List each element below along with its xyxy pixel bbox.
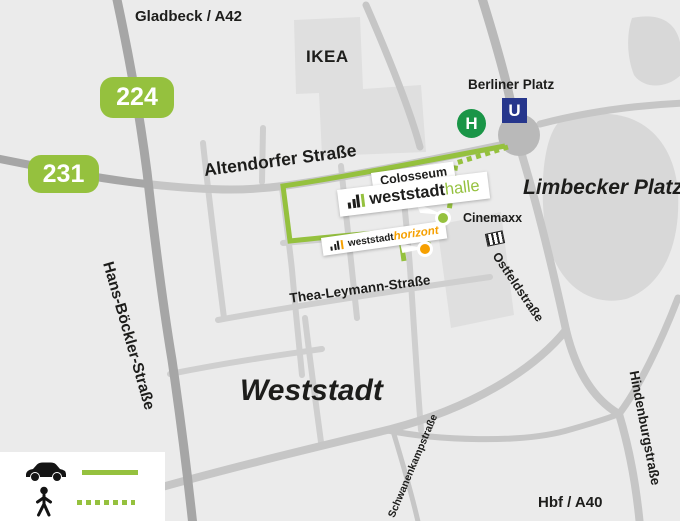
route-badge-231-label: 231 [43,160,85,189]
ikea-building [294,17,426,156]
label-limbecker-platz: Limbecker Platz [523,176,680,200]
label-hbf-a40: Hbf / A40 [538,494,602,511]
legend-walk-row [31,486,135,518]
weststadthorizont-name-suffix: horizont [393,225,440,243]
label-berliner-platz: Berliner Platz [468,77,554,92]
route-badge-224: 224 [100,77,174,118]
u-bahn-icon: U [502,98,527,123]
hindenburg-upper-road [619,298,678,414]
label-weststadt: Weststadt [240,374,383,408]
weststadthorizont-name-prefix: weststadt [347,231,394,248]
pedestrian-icon [31,486,57,518]
route-badge-231: 231 [28,155,99,193]
weststadthalle-bars-icon [347,194,366,209]
legend-dotted-route-line [77,500,135,505]
weststadthalle-name-prefix: weststadt [368,181,446,209]
tram-stop-letter: H [465,114,477,134]
southern-sweep-road [155,330,566,489]
berliner-approach-road [481,0,513,114]
legend-solid-route-line [82,470,138,475]
map-graphic [0,0,680,521]
label-gladbeck-a42: Gladbeck / A42 [135,8,242,25]
limbecker-platz-mall [543,114,679,301]
weststadthalle-marker [435,210,451,226]
label-cinemaxx: Cinemaxx [463,211,522,225]
limbecker-north-block [628,16,680,85]
weststadthorizont-bars-icon [330,239,345,250]
route-badge-224-label: 224 [116,83,158,112]
map-canvas: Gladbeck / A42 IKEA 224 231 Altendorfer … [0,0,680,521]
legend-car-row [22,460,138,484]
weststadthorizont-marker [417,241,433,257]
car-icon [22,460,68,484]
tram-stop-icon: H [457,109,486,138]
legend-box [0,452,165,521]
label-ikea: IKEA [306,47,349,67]
weststadthalle-name-suffix: halle [444,177,481,200]
u-bahn-letter: U [508,101,520,121]
